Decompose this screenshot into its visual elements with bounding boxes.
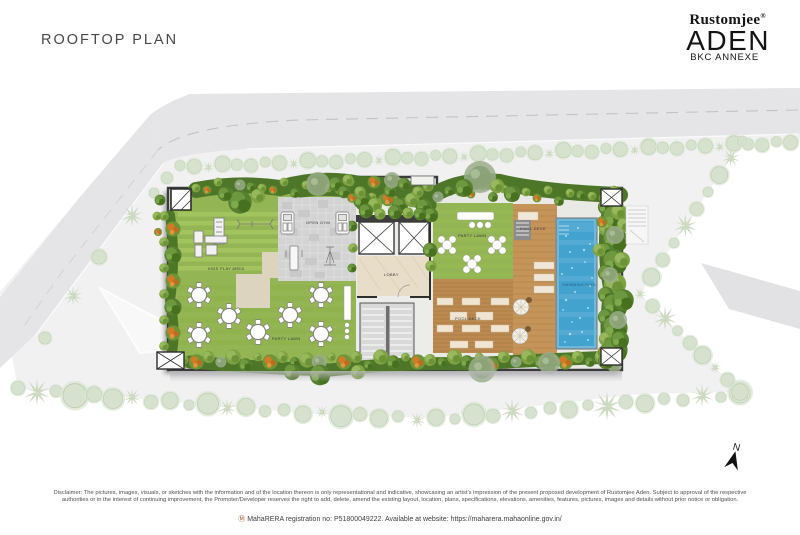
svg-text:POOL DECK: POOL DECK [520, 226, 546, 231]
svg-text:N: N [732, 442, 742, 454]
svg-text:POOL DECK: POOL DECK [455, 316, 481, 321]
svg-text:OPEN GYM: OPEN GYM [306, 220, 330, 225]
svg-text:SWIMMING POOL: SWIMMING POOL [562, 283, 596, 287]
svg-text:KIDS PLAY AREA: KIDS PLAY AREA [208, 266, 244, 271]
svg-text:PARTY LAWN: PARTY LAWN [272, 336, 300, 341]
svg-text:PARTY LAWN: PARTY LAWN [458, 233, 486, 238]
svg-text:LOBBY: LOBBY [384, 272, 399, 277]
